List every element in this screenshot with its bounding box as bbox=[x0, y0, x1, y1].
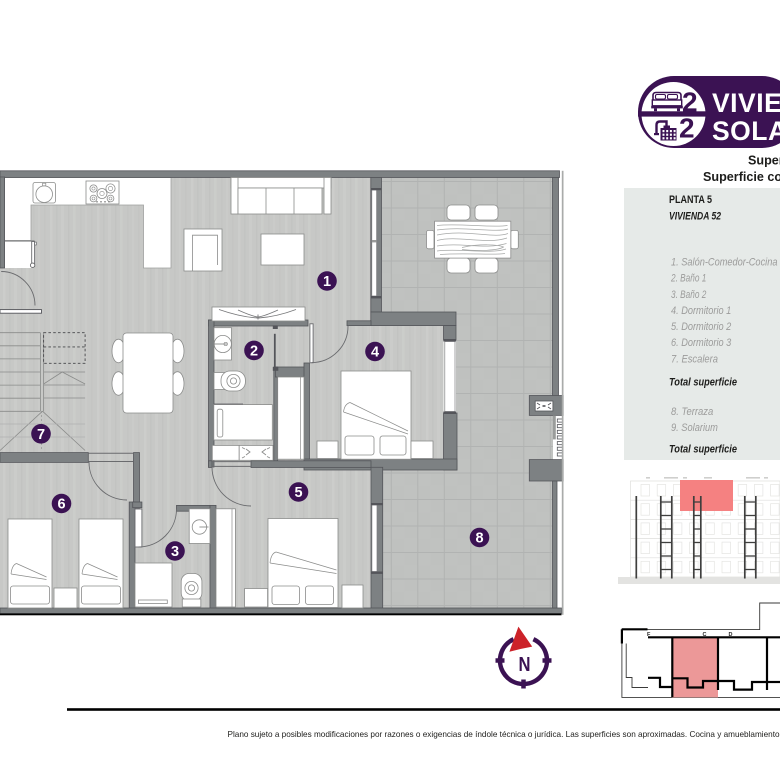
svg-text:7. Escalera: 7. Escalera bbox=[671, 353, 718, 365]
svg-text:1. Salón-Comedor-Cocina: 1. Salón-Comedor-Cocina bbox=[671, 257, 778, 269]
svg-text:8. Terraza: 8. Terraza bbox=[671, 406, 713, 418]
svg-text:2: 2 bbox=[250, 344, 258, 360]
svg-text:C: C bbox=[703, 632, 707, 638]
svg-text:Total superficie: Total superficie bbox=[669, 377, 737, 389]
svg-text:VIVIENDA 52: VIVIENDA 52 bbox=[669, 211, 721, 223]
svg-text:2: 2 bbox=[679, 113, 695, 144]
svg-text:PLANTA 5: PLANTA 5 bbox=[669, 194, 712, 206]
svg-text:D: D bbox=[729, 632, 733, 638]
svg-text:8: 8 bbox=[475, 531, 483, 547]
svg-text:6. Dormitorio 3: 6. Dormitorio 3 bbox=[671, 337, 732, 349]
svg-text:N: N bbox=[519, 653, 531, 676]
svg-text:Superficie construida con z.c.: Superficie construida con z.c. bbox=[703, 170, 780, 184]
svg-text:3: 3 bbox=[171, 544, 179, 560]
svg-text:SOLARIUM: SOLARIUM bbox=[712, 116, 780, 146]
svg-text:7: 7 bbox=[37, 427, 45, 443]
svg-text:VIVIENDAS: VIVIENDAS bbox=[712, 88, 780, 118]
svg-text:5. Dormitorio 2: 5. Dormitorio 2 bbox=[671, 321, 731, 333]
svg-text:Plano sujeto a posibles modifi: Plano sujeto a posibles modificaciones p… bbox=[228, 730, 780, 739]
svg-text:9. Solarium: 9. Solarium bbox=[671, 422, 718, 434]
svg-text:1: 1 bbox=[323, 274, 331, 290]
svg-text:6: 6 bbox=[57, 497, 65, 513]
svg-text:4: 4 bbox=[371, 345, 379, 361]
svg-text:2. Baño 1: 2. Baño 1 bbox=[670, 273, 706, 285]
svg-text:4. Dormitorio 1: 4. Dormitorio 1 bbox=[671, 305, 731, 317]
svg-text:3. Baño 2: 3. Baño 2 bbox=[671, 289, 706, 301]
svg-text:5: 5 bbox=[294, 485, 302, 501]
svg-text:Superficie construida: Superficie construida bbox=[748, 154, 780, 168]
svg-text:Total superficie: Total superficie bbox=[669, 444, 737, 456]
